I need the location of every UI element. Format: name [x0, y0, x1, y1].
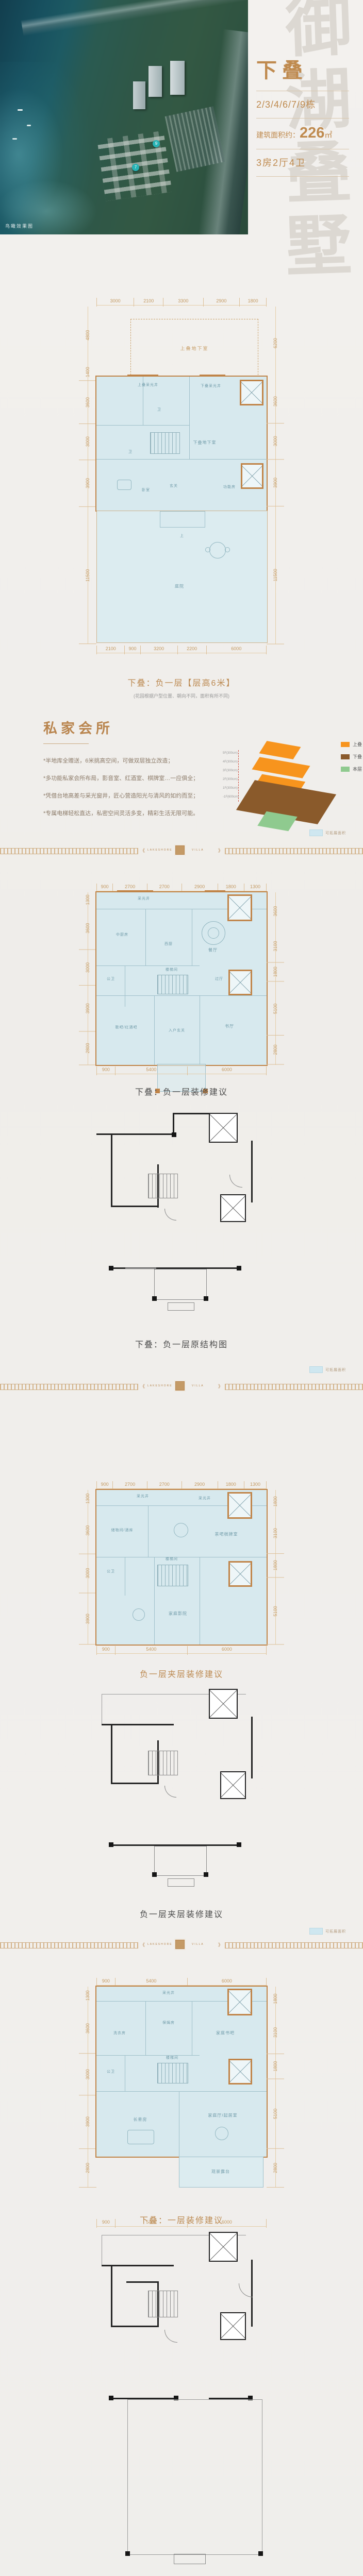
plan-caption: 负一层夹层装修建议	[0, 1667, 363, 1680]
heading-underline	[43, 743, 89, 744]
dimension-label: 1300	[79, 1987, 96, 2004]
upper-unit-slab	[259, 741, 301, 759]
ornamental-divider: 《 LAKESHORE VILLA 》	[0, 845, 363, 856]
room-label: 家庭影院	[169, 1611, 187, 1617]
dimension-label: 5400	[115, 1066, 187, 1075]
room-label: 下叠采光井	[201, 383, 221, 388]
elevator-icon	[220, 1771, 246, 1799]
entry-porch	[154, 1269, 207, 1300]
dimension-label: 5100	[267, 982, 284, 1036]
selling-points: *半地库全赠送，6米挑高空间，可做双层独立改造；*多功能私家会所布局，影音室、红…	[43, 752, 229, 822]
dimension-label: 6000	[187, 1646, 267, 1655]
elevator-icon	[227, 1989, 252, 2015]
plan-canvas: 采光井 中厨房 西厨 餐厅 过厅 公卫 楼梯间 歌吧/红酒吧 入户玄关 书厅	[96, 892, 267, 1065]
brand-text: LAKESHORE	[147, 849, 173, 852]
elevator-icon	[220, 1194, 246, 1222]
room-label: 卧室	[142, 487, 150, 493]
divider-line	[256, 176, 349, 177]
room-label: 玄关	[170, 483, 178, 488]
dimension-col-right: 620036003000390011500	[267, 307, 284, 644]
dimension-row-top: 30002100330029001800	[96, 296, 267, 307]
chevron-left-icon: 《	[140, 1941, 145, 1948]
building-numbers: 2/3/4/6/7/9栋	[256, 97, 349, 111]
dimension-label: 1800	[267, 962, 284, 981]
dimension-label: 3600	[267, 892, 284, 930]
chevron-right-icon: 》	[218, 1941, 223, 1948]
boat-dot-1	[18, 109, 23, 111]
legend-item: 本层	[341, 766, 362, 772]
dimension-label: 3900	[79, 460, 96, 507]
legend-label: 本层	[353, 766, 362, 772]
selling-point: *专属电梯轻松直达，私密空间灵活多变，精彩生活无限可能。	[43, 805, 229, 822]
stairs-icon	[157, 975, 188, 994]
expandable-area-legend: 可拓展面积	[309, 1366, 346, 1373]
project-info-panel: 下叠 2/3/4/6/7/9栋 建筑面积约：226㎡ 3房2厅4卫	[248, 0, 363, 294]
dimension-label: 1300	[79, 892, 96, 907]
expandable-swatch-icon	[309, 1928, 323, 1935]
legend-swatch-icon	[341, 742, 350, 747]
courtyard-outline	[127, 2399, 262, 2555]
dimension-label: 2800	[79, 1032, 96, 1065]
dimension-label: 3000	[79, 1554, 96, 1594]
dimension-label: 1300	[244, 884, 267, 892]
dimension-label: 2800	[79, 2149, 96, 2188]
chevron-right-icon: 》	[218, 847, 223, 854]
expandable-area-legend: 可拓展面积	[309, 1928, 346, 1935]
dimension-label: 3900	[79, 986, 96, 1031]
dimension-label: 3100	[267, 1513, 284, 1554]
room-label: 书厅	[225, 1024, 234, 1029]
stairs-icon	[157, 2063, 188, 2083]
room-label: 西厨	[164, 941, 173, 946]
dimension-label: 11500	[79, 507, 96, 644]
dimension-label: 2200	[177, 646, 206, 654]
room-label: 公卫	[107, 1569, 115, 1574]
floor-height-label: 5F(300cm)	[223, 749, 239, 758]
courtyard: 上 庭院	[96, 511, 268, 643]
room-label: 保姆房	[162, 2020, 175, 2025]
garden-table-icon	[209, 542, 226, 558]
stairs-icon	[148, 1751, 178, 1775]
door-swing	[164, 1786, 176, 1798]
floorplan-mezzanine-furnished: 90027002700290018001300 1300360030003900…	[79, 1480, 284, 1655]
chevron-right-icon: 》	[218, 1383, 223, 1389]
dimension-label: 5400	[115, 1646, 187, 1655]
dimension-label: 6000	[187, 1066, 267, 1075]
elevator-icon	[240, 380, 263, 405]
divider-line	[256, 149, 349, 149]
upper-unit-slab	[252, 757, 310, 778]
floor-height-label: 3F(300cm)	[223, 767, 239, 775]
room-label: 采光井	[137, 1494, 149, 1499]
divider-line	[256, 91, 349, 91]
elevator-icon	[228, 2059, 252, 2084]
room-label: 茶吧棋牌室	[215, 1532, 238, 1537]
expandable-swatch-icon	[309, 829, 323, 836]
coffee-table-icon	[215, 2127, 228, 2140]
dimension-label: 3600	[79, 907, 96, 950]
dimension-col-right: 36003100180051002800	[267, 892, 284, 1065]
floor-height-label: 2F(300cm)	[223, 775, 239, 784]
floorplan-basement-furnished: 90027002700290018001300 1300360030003900…	[79, 882, 284, 1075]
room-label: 餐厅	[208, 947, 218, 953]
floorplan-mezzanine-structure	[96, 1689, 267, 1895]
floorplan-level1-furnished: 90054006000 13003600300039002800 采光井 保姆房…	[79, 1976, 284, 2198]
room-label: 楼梯间	[166, 2055, 178, 2060]
dimension-label: 1300	[244, 1481, 267, 1490]
dimension-label: 5400	[115, 1978, 187, 1987]
plan-caption: 下叠：负一层【层高6米】	[0, 676, 363, 688]
plan-canvas: 采光井 采光井 储物间/酒库 茶吧棋牌室 公卫 楼梯间 家庭影院	[96, 1490, 267, 1645]
room-label: 功能房	[223, 484, 236, 489]
dimension-label: 3600	[79, 1507, 96, 1554]
tower-1	[148, 66, 162, 97]
brochure-page: 9 7 鸟瞰效果图 御湖叠墅 下叠 2/3/4/6/7/9栋 建筑面积约：226…	[0, 0, 363, 2576]
room-label: 采光井	[199, 1496, 211, 1501]
dimension-label: 3600	[79, 2004, 96, 2054]
brand-text: VILLA	[192, 849, 204, 852]
floor-height-label: 4F(300cm)	[223, 758, 239, 767]
expandable-label: 可拓展面积	[325, 831, 346, 836]
dimension-label: 3300	[163, 298, 203, 307]
brand-text: LAKESHORE	[147, 1943, 173, 1946]
stacking-diagram: 5F(300cm)4F(300cm)3F(300cm)2F(300cm)1F(3…	[223, 736, 362, 839]
door-swing	[239, 2283, 253, 2297]
room-label: 庭院	[175, 584, 184, 589]
dimension-label: 2900	[203, 298, 240, 307]
elevator-icon	[227, 1492, 252, 1519]
dimension-label: 3000	[267, 423, 284, 460]
dimension-label: 3000	[79, 424, 96, 460]
dimension-label: 1800	[218, 1481, 244, 1490]
dimension-label: 2100	[134, 298, 163, 307]
chevron-left-icon: 《	[140, 1383, 145, 1389]
section-heading: 私家会所	[43, 717, 229, 737]
tower-2	[170, 61, 185, 95]
tea-table-icon	[174, 1523, 188, 1537]
dimension-label: 2700	[112, 1481, 147, 1490]
room-label: 洗衣房	[113, 2030, 126, 2036]
expandable-swatch-icon	[309, 1366, 323, 1373]
area-value: 226	[300, 125, 324, 141]
legend-label: 下叠	[353, 753, 362, 760]
dimension-label: 2800	[267, 1035, 284, 1065]
dimension-label: 3100	[267, 930, 284, 963]
room-label: 过厅	[215, 976, 223, 981]
legend-item: 下叠	[341, 753, 362, 760]
dimension-label: 5100	[267, 1578, 284, 1645]
sofa-icon	[133, 1608, 145, 1621]
boat-dot-2	[27, 125, 31, 126]
elevator-icon	[209, 1689, 238, 1719]
dimension-label: 900	[96, 1978, 115, 1987]
elevator-icon	[227, 894, 252, 921]
dimension-row-bottom: 90054006000	[96, 1645, 267, 1655]
dimension-label: 3900	[79, 2095, 96, 2149]
unit-type-title: 下叠	[256, 54, 349, 83]
dimension-label: 3200	[140, 646, 177, 654]
floorplan-basement-overall: 30002100330029001800 4800140036003000390…	[79, 296, 284, 654]
room-label: 家庭厅/起居室	[208, 2113, 237, 2119]
expandable-label: 可拓展面积	[325, 1367, 346, 1372]
legend-item: 上叠	[341, 741, 362, 748]
room-label: 上叠采光井	[138, 382, 158, 387]
dimension-label: 6000	[187, 1978, 267, 1987]
brand-text: VILLA	[192, 1943, 204, 1946]
road-curve	[19, 0, 248, 50]
expandable-area-legend: 可拓展面积	[309, 829, 346, 836]
aerial-photo: 9 7 鸟瞰效果图	[0, 0, 248, 234]
dimension-label: 1300	[79, 1490, 96, 1507]
brand-text: VILLA	[192, 1384, 204, 1387]
door-swing	[164, 2330, 177, 2343]
dimension-label: 1800	[239, 298, 267, 307]
dimension-label: 2800	[267, 2149, 284, 2188]
dimension-label: 4800	[79, 307, 96, 364]
bed-icon	[127, 2130, 154, 2144]
upper-unit-basement-outline: 上叠地下室	[130, 319, 258, 378]
tower-3	[133, 81, 145, 109]
dimension-label: 1800	[267, 2054, 284, 2079]
entry-porch	[154, 1846, 207, 1876]
stairs-icon	[150, 432, 180, 454]
elevator-icon	[220, 2312, 246, 2340]
dimension-label: 6200	[267, 307, 284, 380]
room-label: 中厨房	[116, 932, 128, 937]
dimension-row-bottom: 90054006000	[96, 1065, 267, 1075]
stairs-icon	[148, 1174, 178, 1198]
basement-rooms: 上叠采光井 下叠采光井 卫 下叠地下室 卫 玄关 卧室 功能房	[96, 377, 267, 511]
brand-text: LAKESHORE	[147, 1384, 173, 1387]
ornamental-divider: 《 LAKESHORE VILLA 》	[0, 1939, 363, 1951]
meander-band	[0, 848, 138, 854]
dimension-label: 6000	[206, 646, 267, 654]
dimension-label: 900	[96, 1066, 115, 1075]
floor-height-labels: 5F(300cm)4F(300cm)3F(300cm)2F(300cm)1F(3…	[223, 749, 239, 802]
plan-caption: 下叠：负一层原结构图	[0, 1337, 363, 1350]
dimension-label: 1800	[267, 1987, 284, 2011]
medallion-icon	[174, 1939, 186, 1950]
expandable-label: 可拓展面积	[325, 1929, 346, 1934]
dimension-label: 1800	[267, 1490, 284, 1513]
diagram-legend: 上叠下叠本层	[341, 741, 362, 778]
dimension-label: 900	[124, 646, 140, 654]
room-label: 家庭书吧	[216, 2030, 235, 2036]
legend-label: 上叠	[353, 741, 362, 748]
room-label: 长辈房	[134, 2117, 147, 2123]
dimension-label: 3000	[79, 2054, 96, 2095]
dimension-row-top: 90054006000	[96, 1976, 267, 1987]
elevator-icon	[228, 1561, 252, 1587]
selling-point: *凭借台地高差与采光窗井，匠心营造阳光与清风的如约而至；	[43, 787, 229, 805]
room-label: 公卫	[107, 976, 115, 981]
dimension-label: 900	[96, 1646, 115, 1655]
legend-swatch-icon	[341, 754, 350, 759]
building-marker-badge: 7	[132, 164, 139, 171]
room-label: 楼梯间	[166, 967, 178, 972]
dimension-label: 3100	[267, 2011, 284, 2054]
door-swing	[164, 1209, 176, 1221]
floor-height-label: 1F(300cm)	[223, 784, 239, 793]
elevator-icon	[241, 463, 263, 489]
stair-direction-label: 上	[180, 533, 184, 538]
dimension-label: 1400	[79, 364, 96, 381]
dimension-label: 900	[96, 1481, 112, 1490]
stairs-icon	[148, 2291, 178, 2317]
door-swing	[229, 1175, 242, 1188]
room-label: 采光井	[138, 896, 150, 901]
floorplan-level1-structure	[96, 2232, 267, 2572]
entry-porch	[160, 511, 205, 528]
room-label: 歌吧/红酒吧	[115, 1025, 138, 1030]
dimension-label: 11500	[267, 507, 284, 644]
photo-caption: 鸟瞰效果图	[5, 223, 34, 229]
dimension-col-left: 4800140036003000390011500	[79, 307, 96, 644]
ornamental-divider: 《 LAKESHORE VILLA 》	[0, 1381, 363, 1392]
elevator-icon	[209, 2232, 238, 2262]
plan-note: (花园根据户型位置、朝向不同，面积有所不同)	[0, 692, 363, 699]
room-label: 楼梯间	[166, 1556, 178, 1562]
area-label: 建筑面积约：	[256, 131, 300, 139]
dimension-label: 2900	[181, 1481, 218, 1490]
meander-band	[225, 848, 363, 854]
boat-dot-3	[12, 138, 17, 140]
dimension-label: 3600	[79, 381, 96, 424]
room-label: 采光井	[162, 1990, 175, 1995]
room-label: 卫	[157, 407, 161, 412]
stairs-icon	[157, 1565, 188, 1586]
dimension-label: 5100	[267, 2079, 284, 2149]
dimension-col-right: 18003100180051002800	[267, 1987, 284, 2188]
section-private-club: 私家会所 *半地库全赠送，6米挑高空间，可做双层独立改造；*多功能私家会所布局，…	[43, 717, 229, 822]
divider-line	[256, 118, 349, 118]
elevator-icon	[209, 1113, 238, 1143]
room-label: 下叠地下室	[193, 440, 217, 446]
built-area: 建筑面积约：226㎡	[256, 125, 349, 142]
room-label: 公卫	[107, 2069, 115, 2074]
room-label: 储物间/酒库	[111, 1528, 134, 1533]
medallion-icon	[174, 1380, 186, 1392]
selling-point: *半地库全赠送，6米挑高空间，可做双层独立改造；	[43, 752, 229, 770]
dimension-label: 3000	[96, 298, 134, 307]
room-label: 入户玄关	[169, 1028, 185, 1033]
plan-caption: 下叠：一层装修建议	[0, 2213, 363, 2226]
legend-swatch-icon	[341, 767, 350, 772]
room-label: 观景露台	[211, 2169, 230, 2175]
room-label: 上叠地下室	[180, 345, 208, 352]
building-marker-badge: 9	[153, 140, 160, 147]
medallion-icon	[174, 844, 186, 856]
dimension-row-top: 90027002700290018001300	[96, 1480, 267, 1490]
floor-height-label: -1F(600cm)	[223, 793, 239, 802]
dimension-label: 900	[96, 884, 112, 892]
elevator-icon	[228, 970, 252, 995]
plan-canvas: 采光井 保姆房 洗衣房 家庭书吧 公卫 楼梯间 长辈房 家庭厅/起居室 观景露台	[96, 1987, 267, 2157]
area-unit: ㎡	[324, 131, 332, 140]
chevron-left-icon: 《	[140, 847, 145, 854]
dimension-row-bottom: 2100900320022006000	[96, 644, 267, 654]
room-layout: 3房2厅4卫	[256, 156, 349, 169]
room-label: 卫	[128, 449, 133, 454]
plan-caption: 负一层夹层装修建议	[0, 1907, 363, 1920]
dimension-label: 2100	[96, 646, 124, 654]
view-terrace: 观景露台	[179, 2157, 263, 2188]
dimension-label: 3600	[267, 380, 284, 423]
dimension-label: 1800	[267, 1554, 284, 1578]
floorplan-basement-structure	[96, 1113, 267, 1319]
dimension-col-left: 1300360030003900	[79, 1490, 96, 1645]
dimension-label: 2700	[147, 1481, 181, 1490]
dimension-label: 3000	[79, 950, 96, 986]
dimension-col-left: 13003600300039002800	[79, 892, 96, 1065]
dimension-col-left: 13003600300039002800	[79, 1987, 96, 2188]
plan-canvas: 上叠地下室 上叠采光井 下叠采光井 卫 下叠地下室 卫 玄关 卧室 功能房	[96, 307, 267, 644]
dimension-col-right: 1800310018005100	[267, 1490, 284, 1645]
plan-caption: 下叠：负一层装修建议	[0, 1085, 363, 1097]
dimension-label: 3900	[79, 1594, 96, 1645]
selling-point: *多功能私家会所布局，影音室、红酒室、棋牌室…一应俱全；	[43, 770, 229, 787]
dimension-label: 3900	[267, 460, 284, 506]
